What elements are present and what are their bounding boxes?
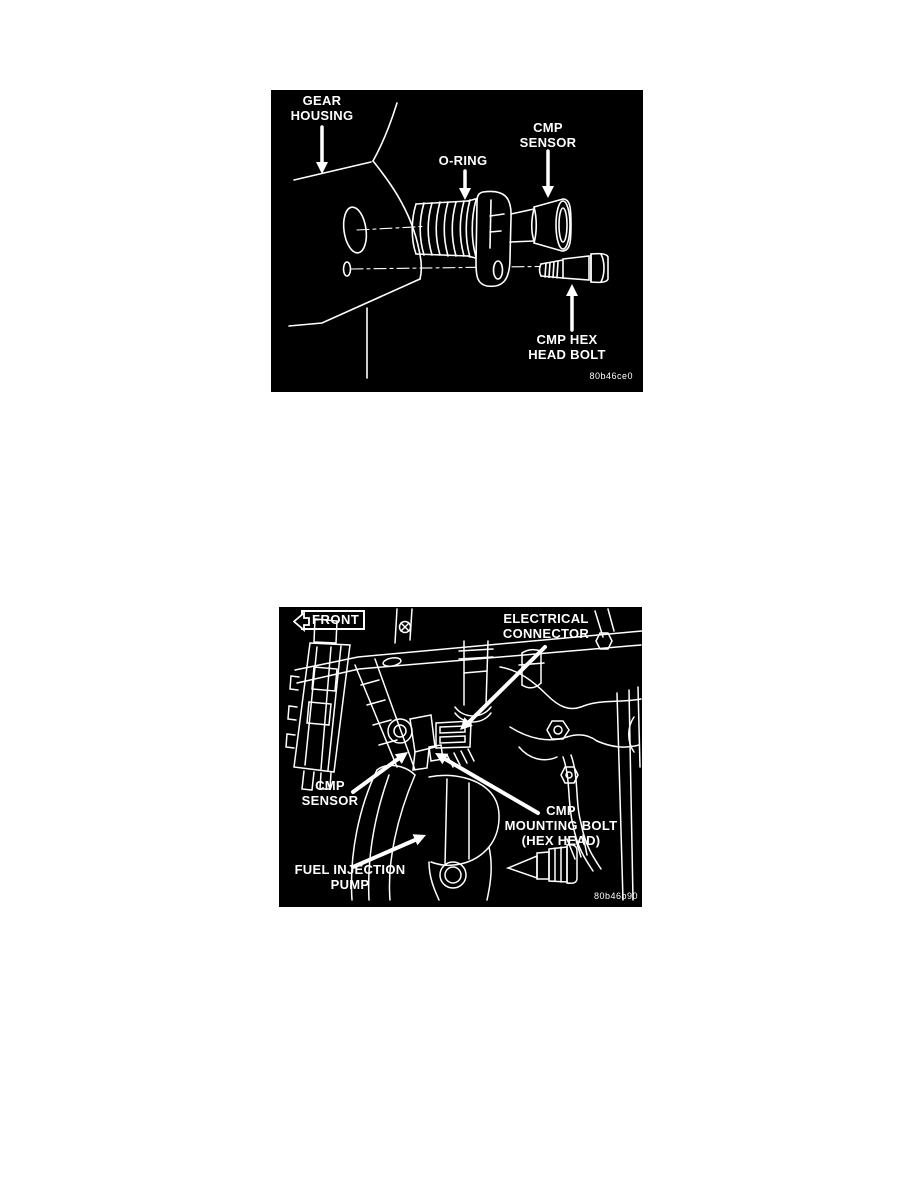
- cmp-sensor-drawing: [412, 191, 571, 286]
- document-page: GEAR HOUSING O-RING CMP SENSOR CMP HEX H…: [0, 0, 918, 1188]
- cmp-mounting-bolt-label: CMP MOUNTING BOLT (HEX HEAD): [481, 804, 641, 849]
- figure1-code: 80b46ce0: [589, 371, 633, 381]
- electrical-connector-label: ELECTRICAL CONNECTOR: [476, 612, 616, 642]
- figure2-code: 80b46b90: [594, 891, 638, 901]
- gear-housing-arrow-icon: [316, 127, 328, 174]
- o-ring-arrow-icon: [459, 171, 471, 200]
- cmp-sensor-exploded-diagram: GEAR HOUSING O-RING CMP SENSOR CMP HEX H…: [271, 90, 643, 392]
- gear-housing-drawing: [289, 103, 421, 378]
- fuel-injection-pump-label: FUEL INJECTION PUMP: [290, 863, 410, 893]
- front-left-arrow-icon: [293, 611, 310, 632]
- cmp-hex-head-bolt-arrow-icon: [566, 284, 578, 330]
- harness-connector-drawing: [286, 619, 350, 790]
- o-ring-label: O-RING: [418, 154, 508, 169]
- hex-head-bolt-drawing: [540, 254, 609, 283]
- cmp-sensor-location-diagram: FRONT ELECTRICAL CONNECTOR CMP SENSOR CM…: [279, 607, 642, 907]
- cmp-sensor-label: CMP SENSOR: [498, 121, 598, 151]
- cmp-sensor-label: CMP SENSOR: [280, 779, 380, 809]
- front-direction-label: FRONT: [301, 610, 365, 630]
- cmp-hex-head-bolt-label: CMP HEX HEAD BOLT: [507, 333, 627, 363]
- cmp-sensor-arrow-icon: [542, 151, 554, 198]
- gear-housing-label: GEAR HOUSING: [271, 94, 373, 124]
